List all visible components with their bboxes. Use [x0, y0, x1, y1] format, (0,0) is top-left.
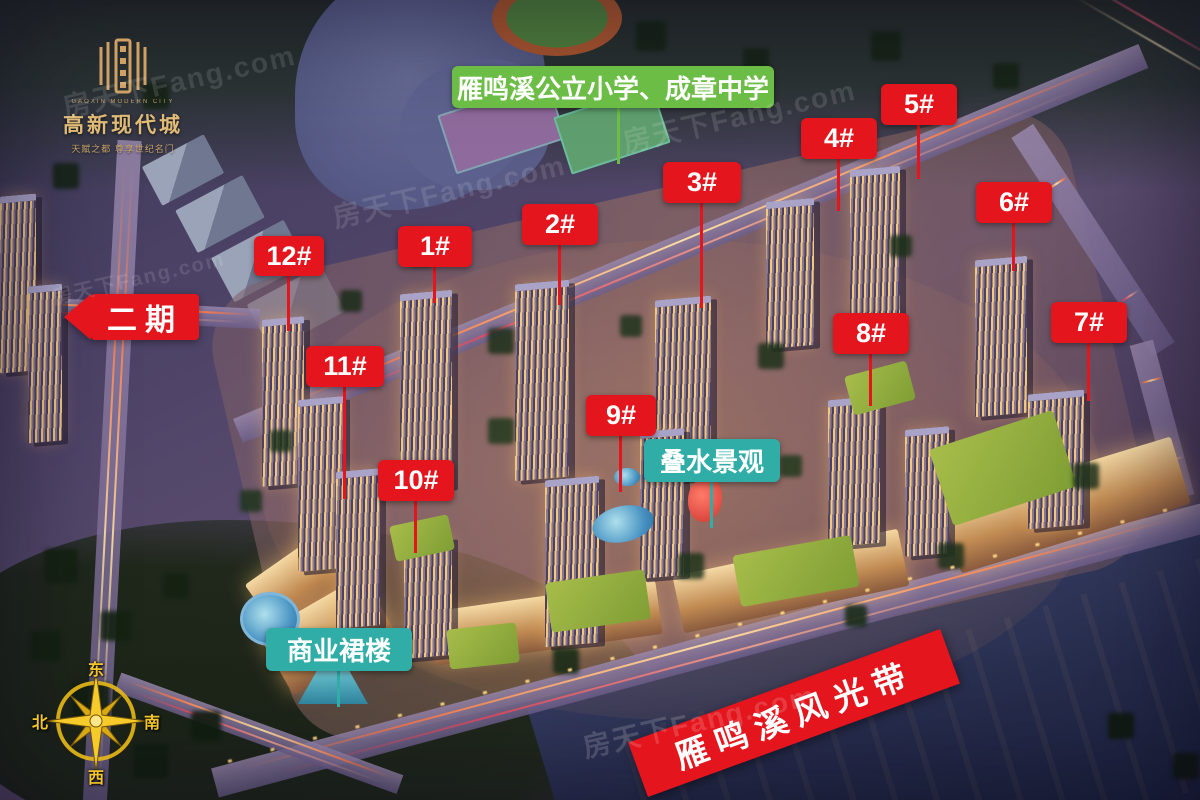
water-feature-leader — [710, 482, 713, 528]
building-11-leader — [343, 387, 346, 499]
building-4-leader — [837, 159, 840, 211]
building-1-leader — [433, 267, 436, 303]
commercial-podium-leader — [337, 671, 340, 707]
building-label-11: 11# — [306, 346, 384, 387]
building-label-8: 8# — [833, 313, 909, 354]
phase2-label: 二期 — [91, 294, 199, 340]
tower-4 — [766, 198, 814, 349]
building-2-leader — [558, 245, 561, 305]
building-7-leader — [1087, 343, 1090, 401]
building-12-leader — [287, 276, 290, 331]
brand-tagline: 天赋之都 尊享世纪名门 — [48, 142, 198, 155]
building-label-4: 4# — [801, 118, 877, 159]
commercial-podium-label: 商业裙楼 — [266, 628, 412, 671]
building-5-leader — [917, 125, 920, 179]
aerial-site-plan: GAOXIN MODERN CITY 高新现代城 天赋之都 尊享世纪名门 雁鸣溪… — [0, 0, 1200, 800]
building-label-10: 10# — [378, 460, 454, 501]
school-leader-line — [617, 108, 620, 164]
building-label-2: 2# — [522, 204, 598, 245]
building-label-3: 3# — [663, 162, 741, 203]
building-10-leader — [414, 501, 417, 553]
building-9-leader — [619, 436, 622, 492]
building-3-leader — [700, 203, 703, 308]
building-6-leader — [1012, 223, 1015, 271]
compass-east-label: 东 — [88, 656, 104, 680]
building-label-7: 7# — [1051, 302, 1127, 343]
compass-north-label: 北 — [32, 709, 48, 733]
compass-south-label: 南 — [144, 709, 160, 733]
building-label-6: 6# — [976, 182, 1052, 223]
water-feature-label: 叠水景观 — [644, 439, 780, 482]
tree-cluster — [0, 0, 2, 2]
roof-garden — [446, 622, 520, 669]
building-8-leader — [869, 354, 872, 406]
compass-rose: 东 南 西 北 — [36, 658, 156, 784]
tower-6 — [975, 256, 1027, 418]
building-label-5: 5# — [881, 84, 957, 125]
tower-5 — [850, 166, 900, 319]
tower-2 — [515, 280, 569, 482]
tower-8 — [828, 396, 880, 548]
compass-west-label: 西 — [88, 764, 104, 788]
landscape-pool — [614, 468, 640, 486]
building-label-12: 12# — [254, 236, 324, 276]
building-label-1: 1# — [398, 226, 472, 267]
building-label-9: 9# — [586, 395, 656, 436]
